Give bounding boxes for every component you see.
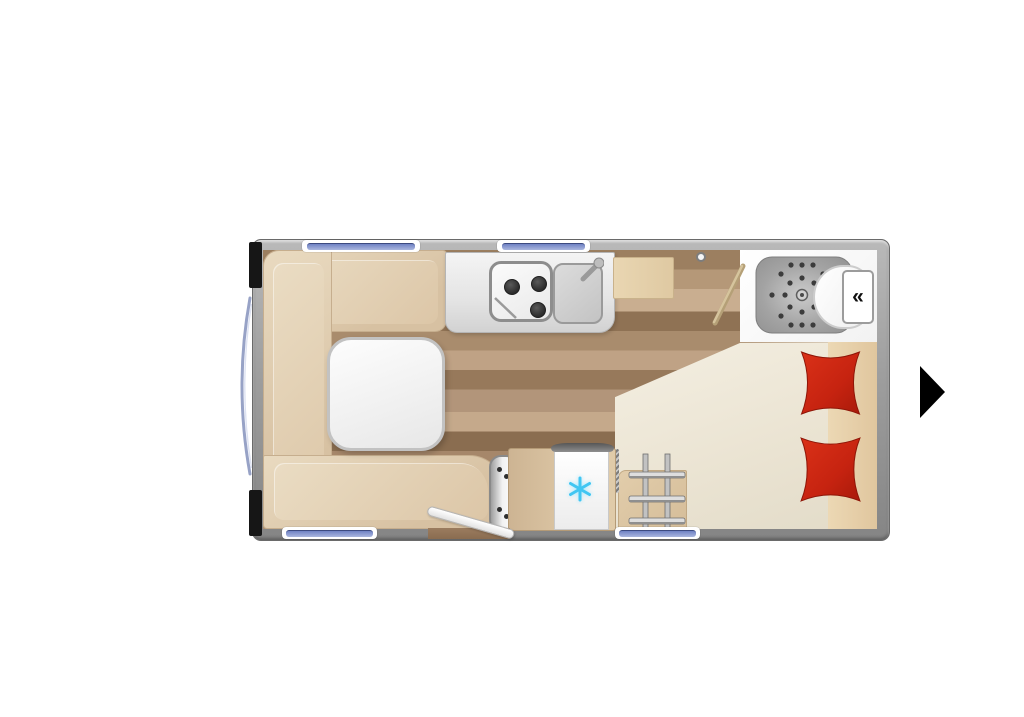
burner-icon [530,302,546,318]
heater-screw-icon [497,467,502,472]
bathroom-door-open [702,258,750,330]
snowflake-icon [567,476,593,502]
bunk-ladder [626,452,688,530]
caravan-floorplan-canvas: « [0,0,1024,717]
refrigerator [508,448,616,531]
stove-3-burner [489,261,553,322]
front-corner-post-top [249,242,262,288]
next-arrow-button[interactable] [920,366,945,418]
faucet-icon [574,256,604,286]
heater-screw-icon [497,507,502,512]
pillow-top [796,347,865,419]
refrigerator-vent-band [551,443,614,452]
pillow-bottom [796,433,865,506]
toilet-service-hatch: « [842,270,874,324]
top-window-right [497,240,590,252]
burner-icon [504,279,520,295]
dinette-table [327,337,445,451]
service-hatch-chevrons: « [852,285,864,309]
bottom-window-left [282,527,377,539]
front-panorama-window [232,294,254,478]
kitchen-end-cabinet [613,257,674,299]
bottom-window-right [615,527,700,539]
burner-icon [531,276,547,292]
top-window-left [302,240,420,252]
front-corner-post-bottom [249,490,262,536]
